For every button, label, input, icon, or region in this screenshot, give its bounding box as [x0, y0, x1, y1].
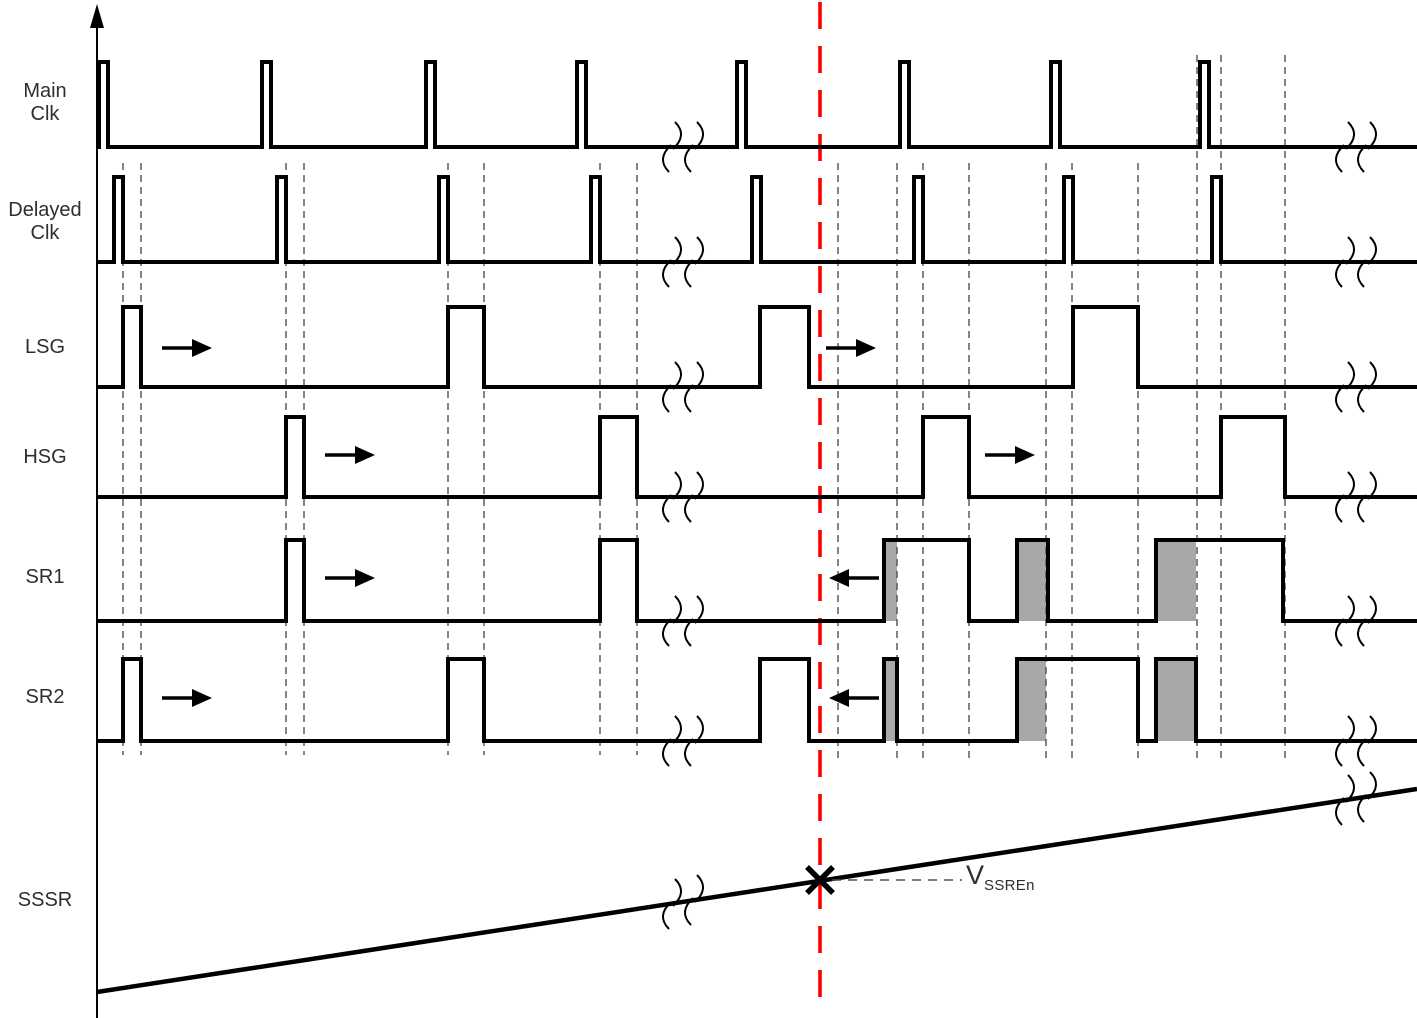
time-break-lower-arc [1358, 385, 1366, 412]
shift-arrow-left-icon [829, 569, 849, 587]
time-break-upper-arc [1368, 472, 1376, 499]
label-hsg: HSG [0, 431, 90, 483]
time-break-upper-arc [1368, 716, 1376, 743]
time-break-lower-arc [685, 385, 693, 412]
time-break-upper-arc [1346, 596, 1354, 623]
time-break-lower-arc [1336, 739, 1344, 766]
label-line: Clk [31, 103, 60, 126]
time-break-upper-arc [673, 716, 681, 743]
time-break-lower-arc [663, 385, 671, 412]
label-line: Clk [31, 222, 60, 245]
time-break-upper-arc [695, 122, 703, 149]
time-break-lower-arc [663, 145, 671, 172]
time-break-upper-arc [673, 596, 681, 623]
label-delayed-clk: Delayed Clk [0, 196, 90, 248]
waveform-lsg [97, 307, 1417, 387]
time-break-lower-arc [663, 260, 671, 287]
time-break-lower-arc [1336, 495, 1344, 522]
time-break-upper-arc [1368, 362, 1376, 389]
label-sssr: SSSR [0, 874, 90, 926]
shift-arrow-left-icon [829, 689, 849, 707]
shift-arrow-right-icon [192, 689, 212, 707]
label-line: SR2 [26, 686, 65, 709]
time-break-lower-arc [1358, 145, 1366, 172]
vssren-symbol: V [966, 860, 984, 890]
gray-increment-sr2 [1017, 659, 1046, 741]
vssren-label: VSSREn [966, 860, 1035, 894]
time-break-upper-arc [1368, 237, 1376, 264]
time-break-upper-arc [1368, 122, 1376, 149]
time-break-lower-arc [663, 619, 671, 646]
time-break-lower-arc [685, 739, 693, 766]
time-break-upper-arc [1346, 122, 1354, 149]
time-break-lower-arc [663, 495, 671, 522]
time-break-lower-arc [1358, 495, 1366, 522]
label-line: Main [23, 80, 66, 103]
label-lsg: LSG [0, 321, 90, 373]
shift-arrow-right-icon [856, 339, 876, 357]
time-break-lower-arc [663, 739, 671, 766]
label-line: Delayed [8, 199, 81, 222]
time-break-upper-arc [1346, 472, 1354, 499]
time-break-lower-arc [1358, 739, 1366, 766]
time-break-lower-arc [685, 495, 693, 522]
time-break-upper-arc [1368, 596, 1376, 623]
label-line: HSG [23, 446, 66, 469]
waveform-sr2 [97, 659, 1417, 741]
time-break-lower-arc [1358, 619, 1366, 646]
time-break-lower-arc [1358, 260, 1366, 287]
vssren-subscript: SSREn [984, 877, 1035, 894]
timing-diagram: Main Clk Delayed Clk LSG HSG SR1 SR2 SSS… [0, 0, 1417, 1018]
time-break-lower-arc [685, 260, 693, 287]
waveform-sr1 [97, 540, 1417, 621]
label-line: SSSR [18, 889, 72, 912]
time-break-upper-arc [695, 362, 703, 389]
time-break-upper-arc [1346, 237, 1354, 264]
axis-arrowhead-icon [90, 4, 104, 28]
shift-arrow-right-icon [355, 446, 375, 464]
gray-increment-sr1 [1017, 540, 1046, 621]
label-sr1: SR1 [0, 551, 90, 603]
time-break-upper-arc [1346, 716, 1354, 743]
label-line: LSG [25, 336, 65, 359]
time-break-upper-arc [695, 472, 703, 499]
time-break-upper-arc [695, 716, 703, 743]
waveform-sssr-ramp [97, 789, 1417, 992]
label-line: SR1 [26, 566, 65, 589]
timing-diagram-canvas [0, 0, 1417, 1018]
time-break-upper-arc [1346, 362, 1354, 389]
shift-arrow-right-icon [1015, 446, 1035, 464]
time-break-lower-arc [1336, 145, 1344, 172]
time-break-lower-arc [1336, 260, 1344, 287]
time-break-upper-arc [673, 237, 681, 264]
time-break-lower-arc [685, 619, 693, 646]
time-break-upper-arc [695, 596, 703, 623]
label-sr2: SR2 [0, 671, 90, 723]
time-break-upper-arc [695, 237, 703, 264]
shift-arrow-right-icon [355, 569, 375, 587]
gray-increment-sr2 [1156, 659, 1196, 741]
time-break-lower-arc [685, 145, 693, 172]
label-main-clk: Main Clk [0, 77, 90, 129]
waveform-delayed-clk [97, 177, 1417, 262]
waveform-hsg [97, 417, 1417, 497]
time-break-upper-arc [673, 362, 681, 389]
time-break-lower-arc [1336, 385, 1344, 412]
gray-increment-sr1 [1156, 540, 1196, 621]
time-break-upper-arc [673, 472, 681, 499]
time-break-lower-arc [1336, 619, 1344, 646]
shift-arrow-right-icon [192, 339, 212, 357]
waveform-main-clk [97, 62, 1417, 147]
time-break-upper-arc [673, 122, 681, 149]
